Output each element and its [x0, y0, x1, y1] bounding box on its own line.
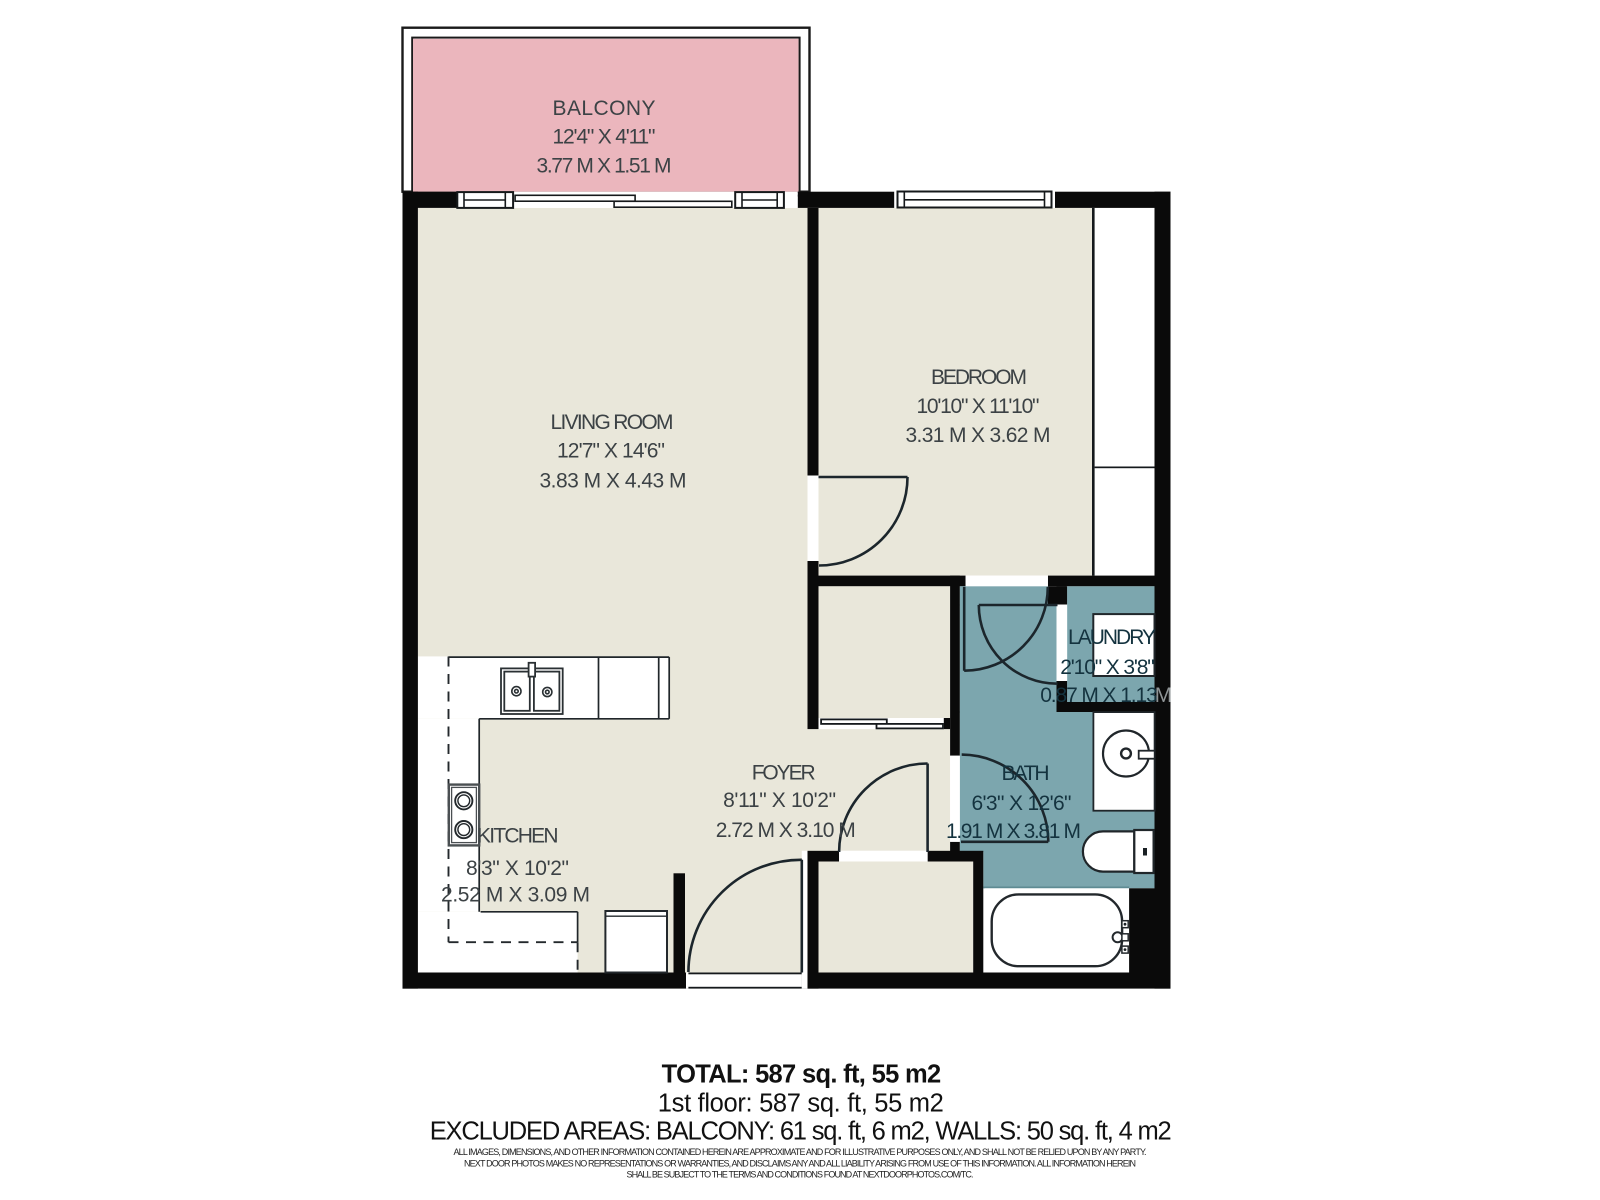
svg-text:2.72 M X 3.10 M: 2.72 M X 3.10 M	[716, 819, 856, 842]
svg-text:BEDROOM: BEDROOM	[931, 366, 1027, 389]
svg-text:2.52 M X 3.09 M: 2.52 M X 3.09 M	[441, 884, 590, 907]
svg-text:6'3" X 12'6": 6'3" X 12'6"	[972, 792, 1072, 815]
svg-text:M: M	[1155, 684, 1173, 707]
svg-text:8'11" X 10'2": 8'11" X 10'2"	[723, 789, 836, 812]
svg-text:LAUNDRY: LAUNDRY	[1068, 626, 1156, 649]
svg-text:EXCLUDED AREAS: BALCONY: 61 sq: EXCLUDED AREAS: BALCONY: 61 sq. ft, 6 m2…	[430, 1118, 1172, 1146]
svg-text:3.77 M X 1.51 M: 3.77 M X 1.51 M	[537, 155, 672, 178]
svg-text:FOYER: FOYER	[752, 762, 816, 785]
svg-text:0.87 M X 1.13: 0.87 M X 1.13	[1040, 684, 1158, 707]
svg-text:BALCONY: BALCONY	[553, 97, 656, 120]
svg-text:KITCHEN: KITCHEN	[477, 825, 559, 848]
svg-text:BATH: BATH	[1002, 762, 1050, 785]
svg-text:3.31 M X 3.62 M: 3.31 M X 3.62 M	[906, 424, 1051, 447]
svg-text:10'10" X 11'10": 10'10" X 11'10"	[917, 395, 1040, 418]
svg-text:NEXT DOOR PHOTOS MAKES NO REPR: NEXT DOOR PHOTOS MAKES NO REPRESENTATION…	[464, 1159, 1136, 1169]
svg-text:ALL IMAGES, DIMENSIONS, AND OT: ALL IMAGES, DIMENSIONS, AND OTHER INFORM…	[453, 1147, 1146, 1157]
svg-text:TOTAL: 587 sq. ft, 55 m2: TOTAL: 587 sq. ft, 55 m2	[662, 1061, 942, 1089]
svg-text:LIVING ROOM: LIVING ROOM	[551, 411, 674, 434]
svg-text:8'3" X 10'2": 8'3" X 10'2"	[466, 857, 569, 880]
svg-text:12'7" X 14'6": 12'7" X 14'6"	[557, 439, 665, 462]
svg-text:3.83 M X 4.43 M: 3.83 M X 4.43 M	[540, 470, 687, 493]
svg-text:1.91 M X 3.81 M: 1.91 M X 3.81 M	[946, 820, 1081, 843]
svg-text:1st floor: 587 sq. ft, 55 m2: 1st floor: 587 sq. ft, 55 m2	[658, 1089, 944, 1117]
svg-text:12'4" X 4'11": 12'4" X 4'11"	[553, 126, 656, 149]
svg-text:2'10" X 3'8": 2'10" X 3'8"	[1060, 656, 1155, 679]
svg-text:SHALL BE SUBJECT TO THE TERMS: SHALL BE SUBJECT TO THE TERMS AND CONDIT…	[627, 1170, 974, 1180]
